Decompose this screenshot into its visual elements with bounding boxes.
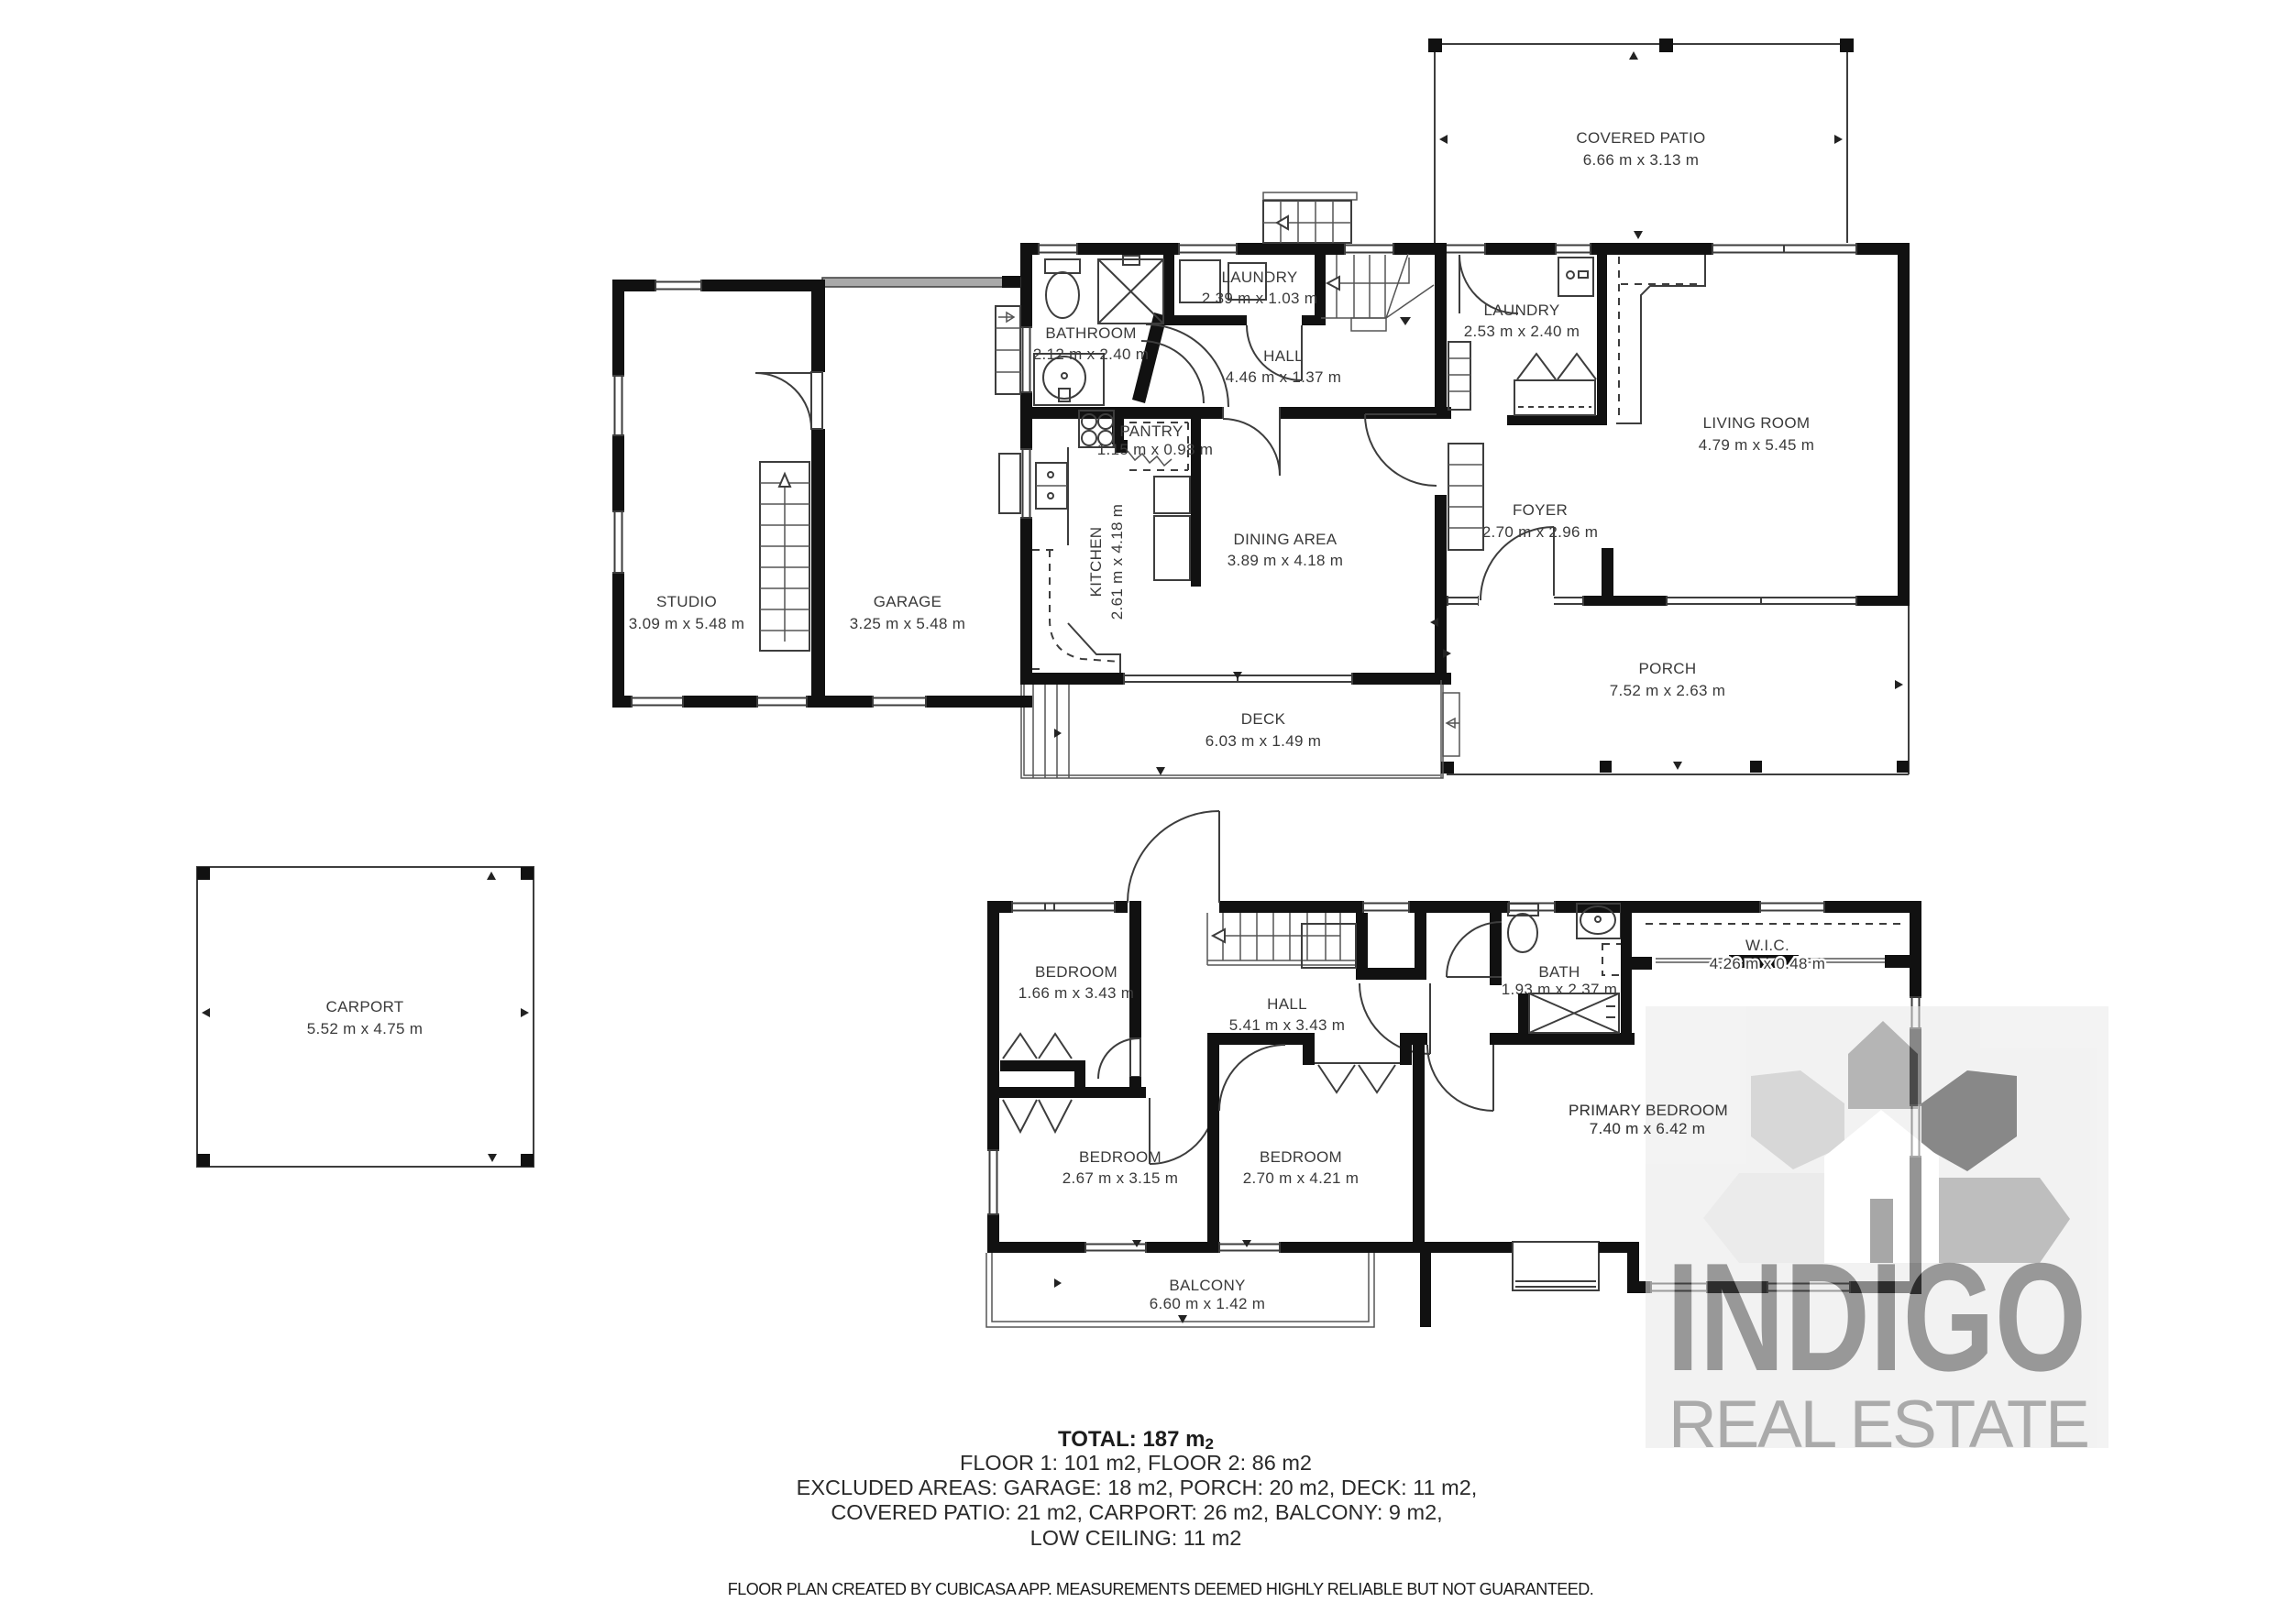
svg-text:FLOOR PLAN CREATED BY CUBICASA: FLOOR PLAN CREATED BY CUBICASA APP. MEAS… <box>728 1580 1593 1598</box>
svg-text:HALL: HALL <box>1263 347 1304 365</box>
svg-text:STUDIO: STUDIO <box>656 593 717 610</box>
svg-text:1.66 m x 3.43 m: 1.66 m x 3.43 m <box>1018 984 1134 1002</box>
svg-text:6.66 m x 3.13 m: 6.66 m x 3.13 m <box>1583 151 1699 169</box>
svg-text:3.25 m x 5.48 m: 3.25 m x 5.48 m <box>850 615 965 632</box>
svg-text:FLOOR 1: 101 m2, FLOOR 2: 86 m: FLOOR 1: 101 m2, FLOOR 2: 86 m2 <box>960 1451 1312 1475</box>
svg-text:6.60 m x 1.42 m: 6.60 m x 1.42 m <box>1150 1295 1265 1312</box>
svg-text:LOW CEILING: 11 m2: LOW CEILING: 11 m2 <box>1030 1526 1242 1550</box>
svg-text:2.70 m x 4.21 m: 2.70 m x 4.21 m <box>1243 1169 1359 1187</box>
svg-text:FOYER: FOYER <box>1513 501 1568 519</box>
svg-text:DECK: DECK <box>1241 710 1286 728</box>
svg-text:CARPORT: CARPORT <box>326 998 404 1015</box>
svg-text:PANTRY: PANTRY <box>1119 422 1183 440</box>
svg-text:7.52 m x 2.63 m: 7.52 m x 2.63 m <box>1610 682 1725 699</box>
svg-text:REAL ESTATE: REAL ESTATE <box>1668 1388 2090 1462</box>
svg-text:HALL: HALL <box>1267 995 1307 1013</box>
svg-text:COVERED PATIO: 21 m2, CARPORT:: COVERED PATIO: 21 m2, CARPORT: 26 m2, BA… <box>831 1500 1442 1524</box>
svg-text:BATH: BATH <box>1538 963 1580 981</box>
svg-text:2.53 m x 2.40 m: 2.53 m x 2.40 m <box>1464 323 1580 340</box>
svg-text:TOTAL: 187 m2: TOTAL: 187 m2 <box>1058 1427 1214 1453</box>
svg-text:6.03 m x 1.49 m: 6.03 m x 1.49 m <box>1206 732 1321 750</box>
svg-text:LIVING ROOM: LIVING ROOM <box>1703 414 1811 432</box>
svg-text:4.26 m x 0.48 m: 4.26 m x 0.48 m <box>1710 955 1825 972</box>
svg-text:BATHROOM: BATHROOM <box>1045 324 1136 342</box>
svg-text:LAUNDRY: LAUNDRY <box>1221 269 1297 286</box>
svg-text:BALCONY: BALCONY <box>1169 1277 1245 1294</box>
svg-text:INDIGO: INDIGO <box>1667 1231 2086 1403</box>
svg-text:BEDROOM: BEDROOM <box>1079 1148 1162 1166</box>
svg-text:5.41 m x 3.43 m: 5.41 m x 3.43 m <box>1229 1016 1345 1034</box>
svg-text:7.40 m x 6.42 m: 7.40 m x 6.42 m <box>1590 1120 1705 1137</box>
svg-text:W.I.C.: W.I.C. <box>1745 937 1789 954</box>
svg-text:4.79 m x 5.45 m: 4.79 m x 5.45 m <box>1699 436 1814 454</box>
svg-text:LAUNDRY: LAUNDRY <box>1483 302 1559 319</box>
svg-text:3.89 m x 4.18 m: 3.89 m x 4.18 m <box>1228 552 1343 569</box>
svg-text:2.61 m x 4.18 m: 2.61 m x 4.18 m <box>1108 504 1126 620</box>
svg-text:PORCH: PORCH <box>1639 660 1697 677</box>
svg-text:2.12 m x 2.40 m: 2.12 m x 2.40 m <box>1033 346 1149 363</box>
svg-text:2.70 m x 2.96 m: 2.70 m x 2.96 m <box>1482 523 1598 541</box>
svg-text:GARAGE: GARAGE <box>874 593 942 610</box>
svg-text:KITCHEN: KITCHEN <box>1087 527 1105 598</box>
svg-text:2.39 m x 1.03 m: 2.39 m x 1.03 m <box>1202 290 1317 307</box>
svg-text:5.52 m x 4.75 m: 5.52 m x 4.75 m <box>307 1020 423 1037</box>
svg-text:COVERED PATIO: COVERED PATIO <box>1576 129 1705 147</box>
svg-text:BEDROOM: BEDROOM <box>1035 963 1117 981</box>
svg-text:EXCLUDED AREAS: GARAGE: 18 m2,: EXCLUDED AREAS: GARAGE: 18 m2, PORCH: 20… <box>797 1476 1478 1499</box>
svg-text:2.67 m x 3.15 m: 2.67 m x 3.15 m <box>1062 1169 1178 1187</box>
svg-text:PRIMARY BEDROOM: PRIMARY BEDROOM <box>1569 1102 1728 1119</box>
svg-text:4.46 m x 1.37 m: 4.46 m x 1.37 m <box>1226 368 1341 386</box>
svg-text:3.09 m x 5.48 m: 3.09 m x 5.48 m <box>629 615 744 632</box>
svg-text:BEDROOM: BEDROOM <box>1260 1148 1342 1166</box>
svg-text:DINING AREA: DINING AREA <box>1234 531 1338 548</box>
